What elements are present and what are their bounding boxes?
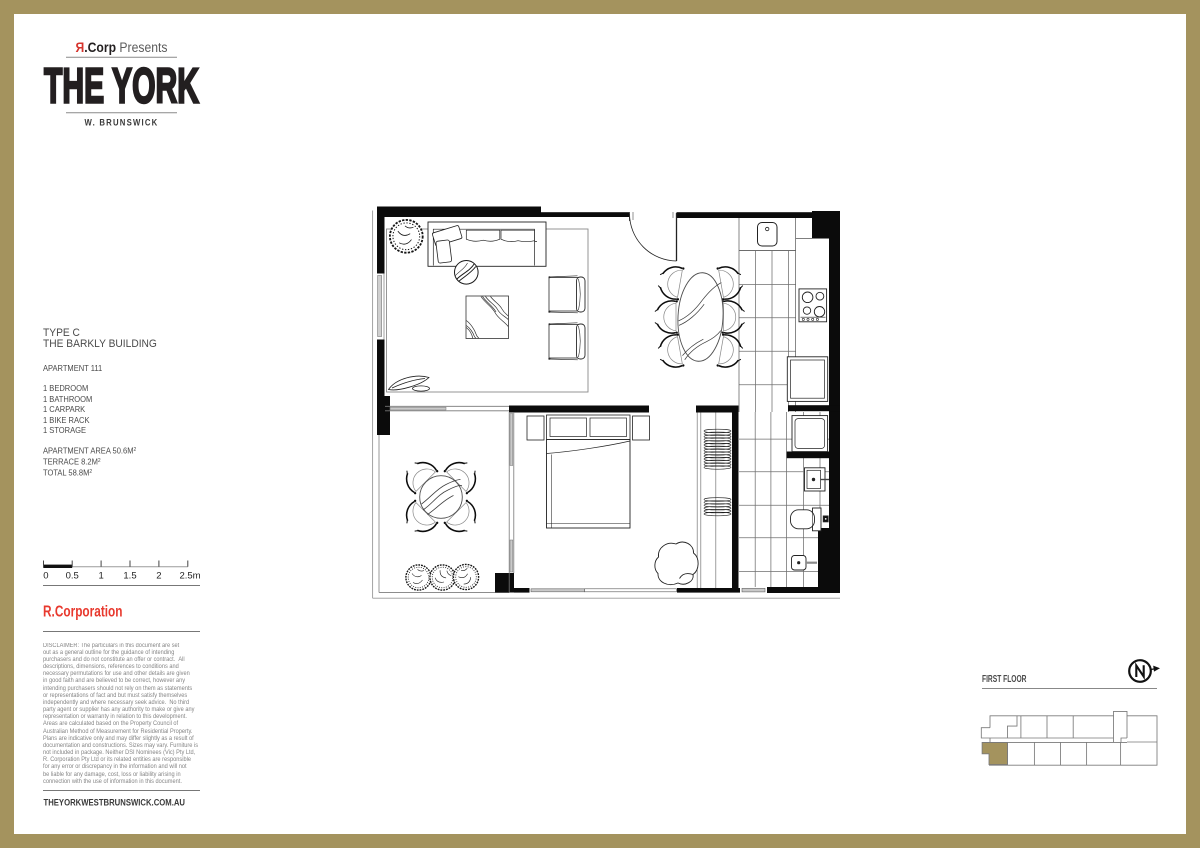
svg-text:0: 0 <box>43 571 48 582</box>
svg-text:0.5: 0.5 <box>66 571 79 582</box>
svg-text:2: 2 <box>156 571 161 582</box>
svg-text:THEYORKWESTBRUNSWICK.COM.AU: THEYORKWESTBRUNSWICK.COM.AU <box>44 798 186 808</box>
svg-text:1: 1 <box>98 571 103 582</box>
svg-text:2.5m: 2.5m <box>179 571 200 582</box>
svg-text:1.5: 1.5 <box>123 571 136 582</box>
svg-text:R.Corporation: R.Corporation <box>43 604 123 621</box>
svg-text:FIRST FLOOR: FIRST FLOOR <box>982 674 1027 685</box>
svg-text:THE YORK: THE YORK <box>44 59 199 114</box>
svg-text:Я.Corp Presents: Я.Corp Presents <box>76 40 168 55</box>
svg-text:W. BRUNSWICK: W. BRUNSWICK <box>85 117 159 128</box>
